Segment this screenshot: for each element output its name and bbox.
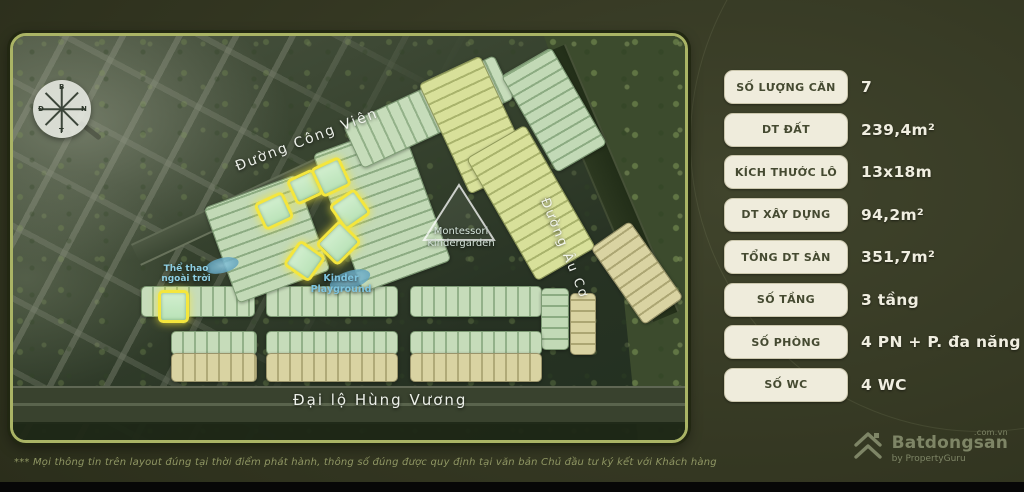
poi-line: Thể thao xyxy=(151,264,221,274)
brand-domain: .com.vn xyxy=(974,428,1008,437)
compass-icon: B N T Đ xyxy=(33,80,91,138)
specs-panel: SỐ LƯỢNG CĂN 7 DT ĐẤT 239,4m² KÍCH THƯỚC… xyxy=(724,71,1020,401)
spec-label-so-phong: SỐ PHÒNG xyxy=(724,325,848,359)
brand-texts: .com.vn Batdongsan by PropertyGuru xyxy=(892,429,1008,464)
poi-label-outdoor-sports: Thể thao ngoài trời xyxy=(151,264,221,285)
spec-value: 94,2m² xyxy=(861,206,924,224)
spec-row: SỐ LƯỢNG CĂN 7 xyxy=(724,71,1020,103)
housing-block xyxy=(171,331,257,355)
spec-label-so-wc: SỐ WC xyxy=(724,368,848,402)
housing-block xyxy=(410,353,542,382)
spec-value: 4 PN + P. đa năng xyxy=(861,333,1021,351)
spec-value: 239,4m² xyxy=(861,121,935,139)
spec-row: SỐ TẦNG 3 tầng xyxy=(724,284,1020,316)
housing-block xyxy=(410,331,542,355)
spec-row: DT ĐẤT 239,4m² xyxy=(724,114,1020,146)
spec-value: 3 tầng xyxy=(861,291,919,309)
batdongsan-house-icon xyxy=(850,429,886,465)
housing-block xyxy=(266,353,398,382)
compass-letter-south: N xyxy=(81,105,87,113)
bottom-black-bar xyxy=(0,482,1024,492)
housing-block xyxy=(410,286,542,317)
spec-label-so-tang: SỐ TẦNG xyxy=(724,283,848,317)
brand-byline: by PropertyGuru xyxy=(892,454,1008,464)
spec-row: DT XÂY DỰNG 94,2m² xyxy=(724,199,1020,231)
spec-label-kich-thuoc-lo: KÍCH THƯỚC LÔ xyxy=(724,155,848,189)
housing-block xyxy=(171,353,257,382)
housing-block xyxy=(541,288,569,350)
compass-letter-north: B xyxy=(59,83,64,91)
street-label-hung-vuong: Đại lộ Hùng Vương xyxy=(293,391,467,409)
poi-line: Montessori xyxy=(419,226,503,238)
spec-value: 4 WC xyxy=(861,376,907,394)
highlighted-lot[interactable] xyxy=(158,290,189,323)
spec-label-tong-dt-san: TỔNG DT SÀN xyxy=(724,240,848,274)
map-aerial-base: Đường Công Viên Đường Âu Cơ Đại lộ Hùng … xyxy=(13,36,685,440)
poi-line: ngoài trời xyxy=(151,274,221,284)
bottom-greenery-strip xyxy=(13,422,685,440)
poi-label-montessori-kindergarden: Montessori Kindergarden xyxy=(419,226,503,249)
compass-letter-west: T xyxy=(59,127,64,135)
spec-row: TỔNG DT SÀN 351,7m² xyxy=(724,241,1020,273)
poi-line: Kindergarden xyxy=(419,238,503,250)
spec-row: SỐ PHÒNG 4 PN + P. đa năng xyxy=(724,326,1020,358)
spec-value: 7 xyxy=(861,78,872,96)
spec-row: SỐ WC 4 WC xyxy=(724,369,1020,401)
spec-label-so-luong-can: SỐ LƯỢNG CĂN xyxy=(724,70,848,104)
batdongsan-logo[interactable]: .com.vn Batdongsan by PropertyGuru xyxy=(850,429,1008,465)
brand-name: Batdongsan xyxy=(892,435,1008,452)
spec-label-dt-dat: DT ĐẤT xyxy=(724,113,848,147)
disclaimer-text: *** Mọi thông tin trên layout đúng tại t… xyxy=(14,457,717,468)
spec-row: KÍCH THƯỚC LÔ 13x18m xyxy=(724,156,1020,188)
housing-block xyxy=(266,331,398,355)
spec-value: 13x18m xyxy=(861,163,932,181)
spec-value: 351,7m² xyxy=(861,248,935,266)
masterplan-map[interactable]: Đường Công Viên Đường Âu Cơ Đại lộ Hùng … xyxy=(10,33,688,443)
housing-block xyxy=(570,293,596,355)
poi-label-kinder-playground: Kinder Playground xyxy=(305,274,377,296)
spec-label-dt-xay-dung: DT XÂY DỰNG xyxy=(724,198,848,232)
compass-letter-east: Đ xyxy=(38,105,44,113)
poi-line: Playground xyxy=(305,285,377,296)
